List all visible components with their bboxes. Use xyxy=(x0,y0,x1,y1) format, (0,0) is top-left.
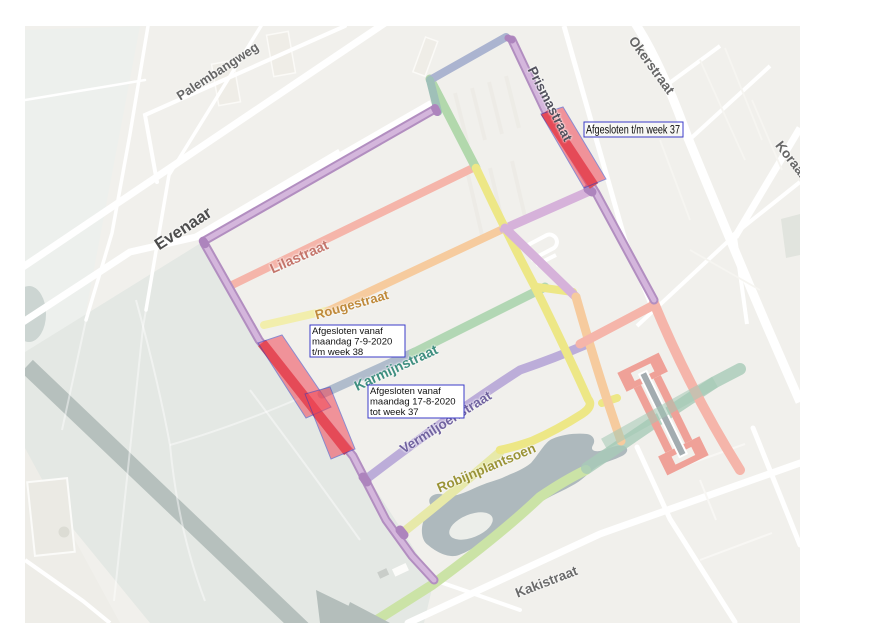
svg-text:Afgesloten t/m week 37: Afgesloten t/m week 37 xyxy=(586,125,680,137)
svg-text:Afgesloten vanaf: Afgesloten vanaf xyxy=(370,386,441,397)
svg-text:tot week 37: tot week 37 xyxy=(370,407,419,418)
svg-text:Afgesloten vanaf: Afgesloten vanaf xyxy=(312,326,383,337)
svg-text:maandag 7-9-2020: maandag 7-9-2020 xyxy=(312,337,392,348)
svg-text:t/m week 38: t/m week 38 xyxy=(312,347,363,358)
svg-text:maandag 17-8-2020: maandag 17-8-2020 xyxy=(370,397,456,408)
